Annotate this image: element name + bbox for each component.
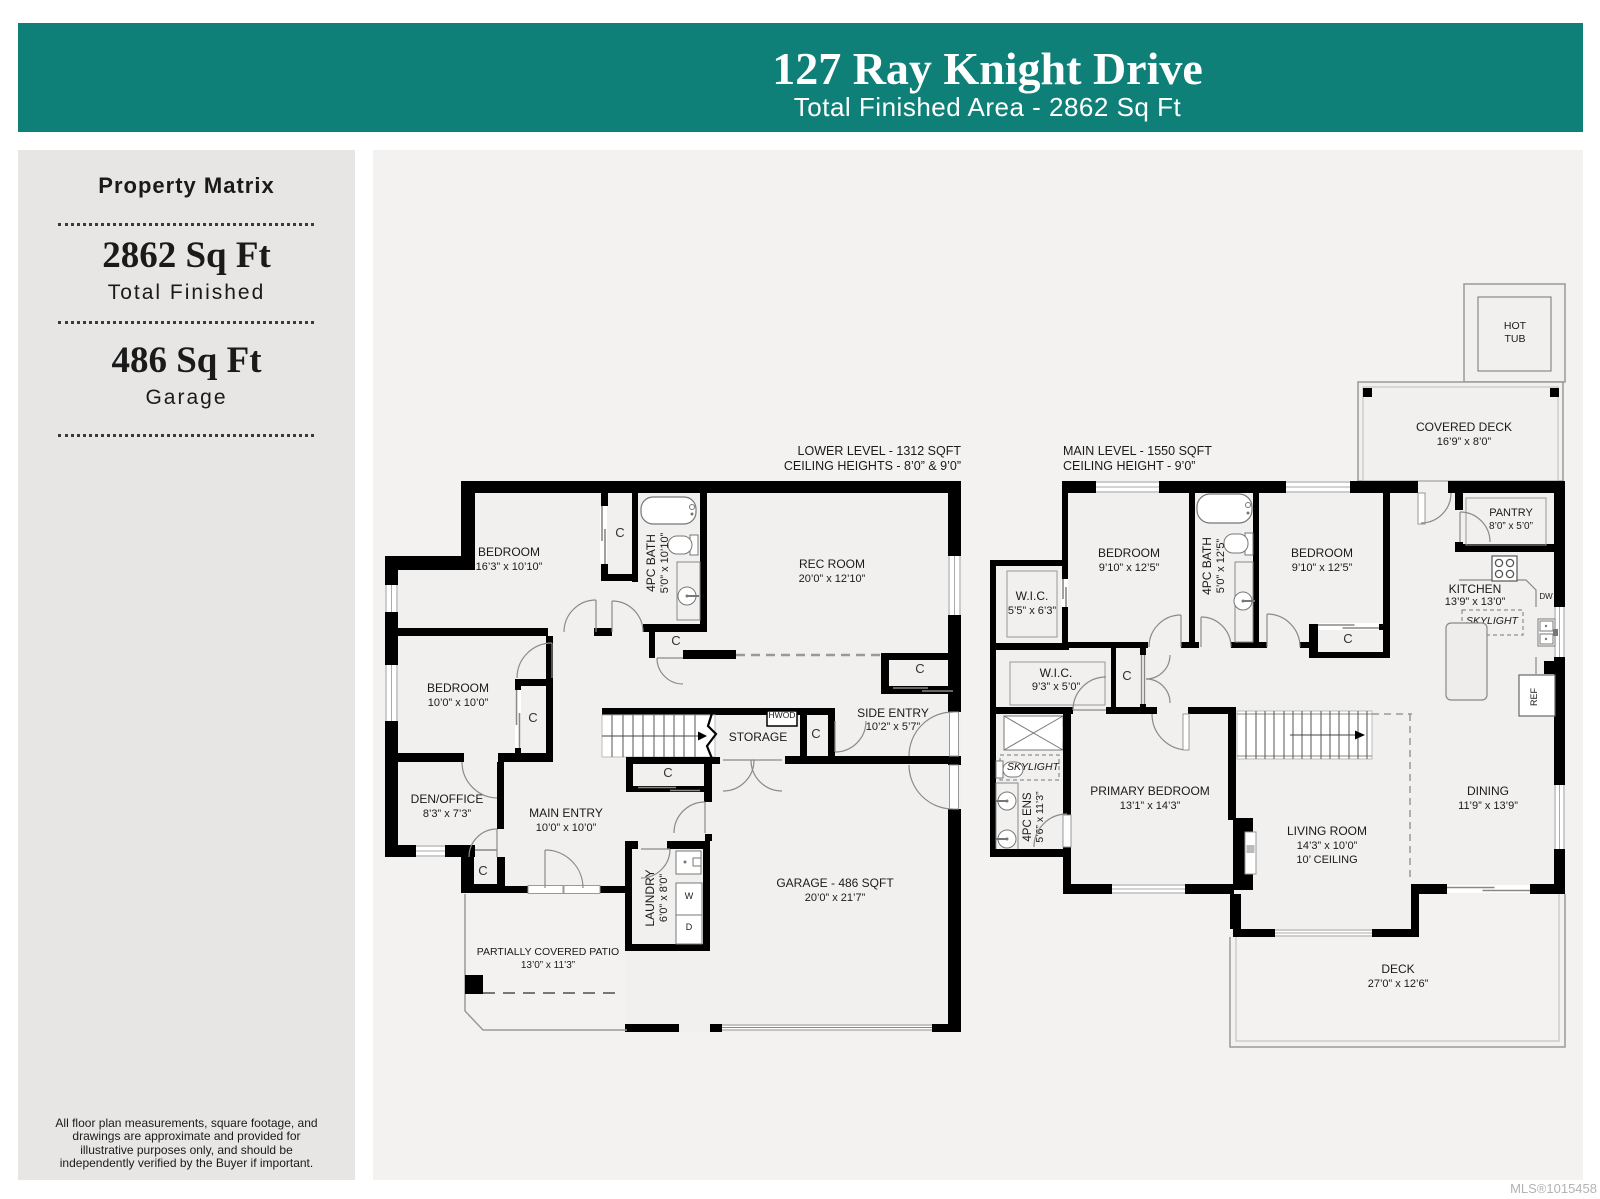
svg-text:W: W	[685, 891, 694, 901]
svg-text:GARAGE - 486 SQFT: GARAGE - 486 SQFT	[776, 876, 894, 890]
svg-text:C: C	[1122, 668, 1131, 683]
svg-text:DEN/OFFICE: DEN/OFFICE	[411, 792, 484, 806]
svg-text:MAIN LEVEL - 1550 SQFT: MAIN LEVEL - 1550 SQFT	[1063, 444, 1212, 458]
svg-text:REF: REF	[1529, 687, 1539, 706]
svg-text:14’3” x 10’0”: 14’3” x 10’0”	[1297, 840, 1358, 852]
svg-text:COVERED DECK: COVERED DECK	[1416, 420, 1512, 434]
svg-text:BEDROOM: BEDROOM	[427, 681, 489, 695]
svg-text:BEDROOM: BEDROOM	[1291, 546, 1353, 560]
svg-text:C: C	[528, 710, 537, 725]
svg-text:20’0” x 21’7”: 20’0” x 21’7”	[805, 892, 866, 904]
svg-text:11’9” x 13’9”: 11’9” x 13’9”	[1458, 800, 1518, 812]
svg-text:DW: DW	[1539, 592, 1553, 601]
svg-text:KITCHEN: KITCHEN	[1449, 582, 1502, 596]
svg-text:CEILING HEIGHTS - 8’0” & 9’0”: CEILING HEIGHTS - 8’0” & 9’0”	[784, 459, 961, 473]
svg-text:9’10” x 12’5”: 9’10” x 12’5”	[1292, 562, 1353, 574]
svg-text:5’0” x 12’5”: 5’0” x 12’5”	[1215, 538, 1227, 593]
svg-text:HWOD: HWOD	[769, 710, 796, 720]
svg-text:5’0” x 10’10”: 5’0” x 10’10”	[659, 532, 671, 593]
svg-text:13’9” x 13’0”: 13’9” x 13’0”	[1445, 596, 1506, 608]
svg-text:SIDE ENTRY: SIDE ENTRY	[857, 706, 929, 720]
svg-text:C: C	[1343, 631, 1352, 646]
svg-text:PANTRY: PANTRY	[1489, 507, 1533, 519]
svg-text:4PC ENS: 4PC ENS	[1022, 792, 1034, 842]
svg-text:4PC BATH: 4PC BATH	[644, 534, 658, 592]
svg-text:C: C	[615, 525, 624, 540]
svg-text:4PC BATH: 4PC BATH	[1200, 537, 1214, 595]
svg-text:C: C	[478, 863, 487, 878]
svg-text:PRIMARY BEDROOM: PRIMARY BEDROOM	[1090, 784, 1210, 798]
svg-text:C: C	[811, 726, 820, 741]
svg-text:9’3” x 5’0”: 9’3” x 5’0”	[1032, 681, 1081, 693]
svg-text:LIVING ROOM: LIVING ROOM	[1287, 824, 1367, 838]
svg-text:W.I.C.: W.I.C.	[1040, 666, 1073, 680]
svg-text:D: D	[686, 922, 693, 932]
svg-text:20’0” x 12’10”: 20’0” x 12’10”	[799, 573, 866, 585]
svg-text:5’5” x 6’3”: 5’5” x 6’3”	[1008, 605, 1057, 617]
svg-text:9’10” x 12’5”: 9’10” x 12’5”	[1099, 562, 1160, 574]
svg-text:6’0” x 8’0”: 6’0” x 8’0”	[658, 874, 670, 923]
svg-text:LAUNDRY: LAUNDRY	[643, 869, 657, 926]
svg-text:C: C	[915, 661, 924, 676]
svg-text:DECK: DECK	[1381, 962, 1414, 976]
svg-text:13’0” x 11’3”: 13’0” x 11’3”	[521, 960, 575, 971]
svg-text:STORAGE: STORAGE	[729, 730, 787, 744]
svg-text:16’9” x 8’0”: 16’9” x 8’0”	[1437, 436, 1492, 448]
svg-text:C: C	[671, 633, 680, 648]
svg-text:DINING: DINING	[1467, 784, 1509, 798]
svg-text:10’0” x 10’0”: 10’0” x 10’0”	[428, 697, 489, 709]
svg-text:13’1” x 14’3”: 13’1” x 14’3”	[1120, 800, 1181, 812]
svg-text:REC ROOM: REC ROOM	[799, 557, 865, 571]
svg-text:LOWER LEVEL - 1312 SQFT: LOWER LEVEL - 1312 SQFT	[798, 444, 962, 458]
svg-text:10’ CEILING: 10’ CEILING	[1296, 854, 1357, 866]
svg-text:MAIN ENTRY: MAIN ENTRY	[529, 806, 603, 820]
svg-text:BEDROOM: BEDROOM	[1098, 546, 1160, 560]
svg-text:C: C	[663, 765, 672, 780]
svg-text:SKYLIGHT: SKYLIGHT	[1007, 761, 1061, 773]
svg-text:8’0” x 5’0”: 8’0” x 5’0”	[1489, 521, 1533, 532]
svg-text:8’3” x 7’3”: 8’3” x 7’3”	[423, 808, 472, 820]
svg-text:BEDROOM: BEDROOM	[478, 545, 540, 559]
svg-text:TUB: TUB	[1505, 333, 1526, 345]
svg-text:W.I.C.: W.I.C.	[1016, 589, 1049, 603]
svg-text:PARTIALLY COVERED PATIO: PARTIALLY COVERED PATIO	[477, 946, 619, 958]
svg-text:HOT: HOT	[1504, 320, 1527, 332]
svg-text:10’0” x 10’0”: 10’0” x 10’0”	[536, 822, 597, 834]
svg-text:10’2” x 5’7”: 10’2” x 5’7”	[866, 721, 921, 733]
svg-text:CEILING HEIGHT - 9’0”: CEILING HEIGHT - 9’0”	[1063, 459, 1195, 473]
svg-text:16’3” x 10’10”: 16’3” x 10’10”	[476, 561, 543, 573]
svg-text:27’0” x 12’6”: 27’0” x 12’6”	[1368, 978, 1429, 990]
